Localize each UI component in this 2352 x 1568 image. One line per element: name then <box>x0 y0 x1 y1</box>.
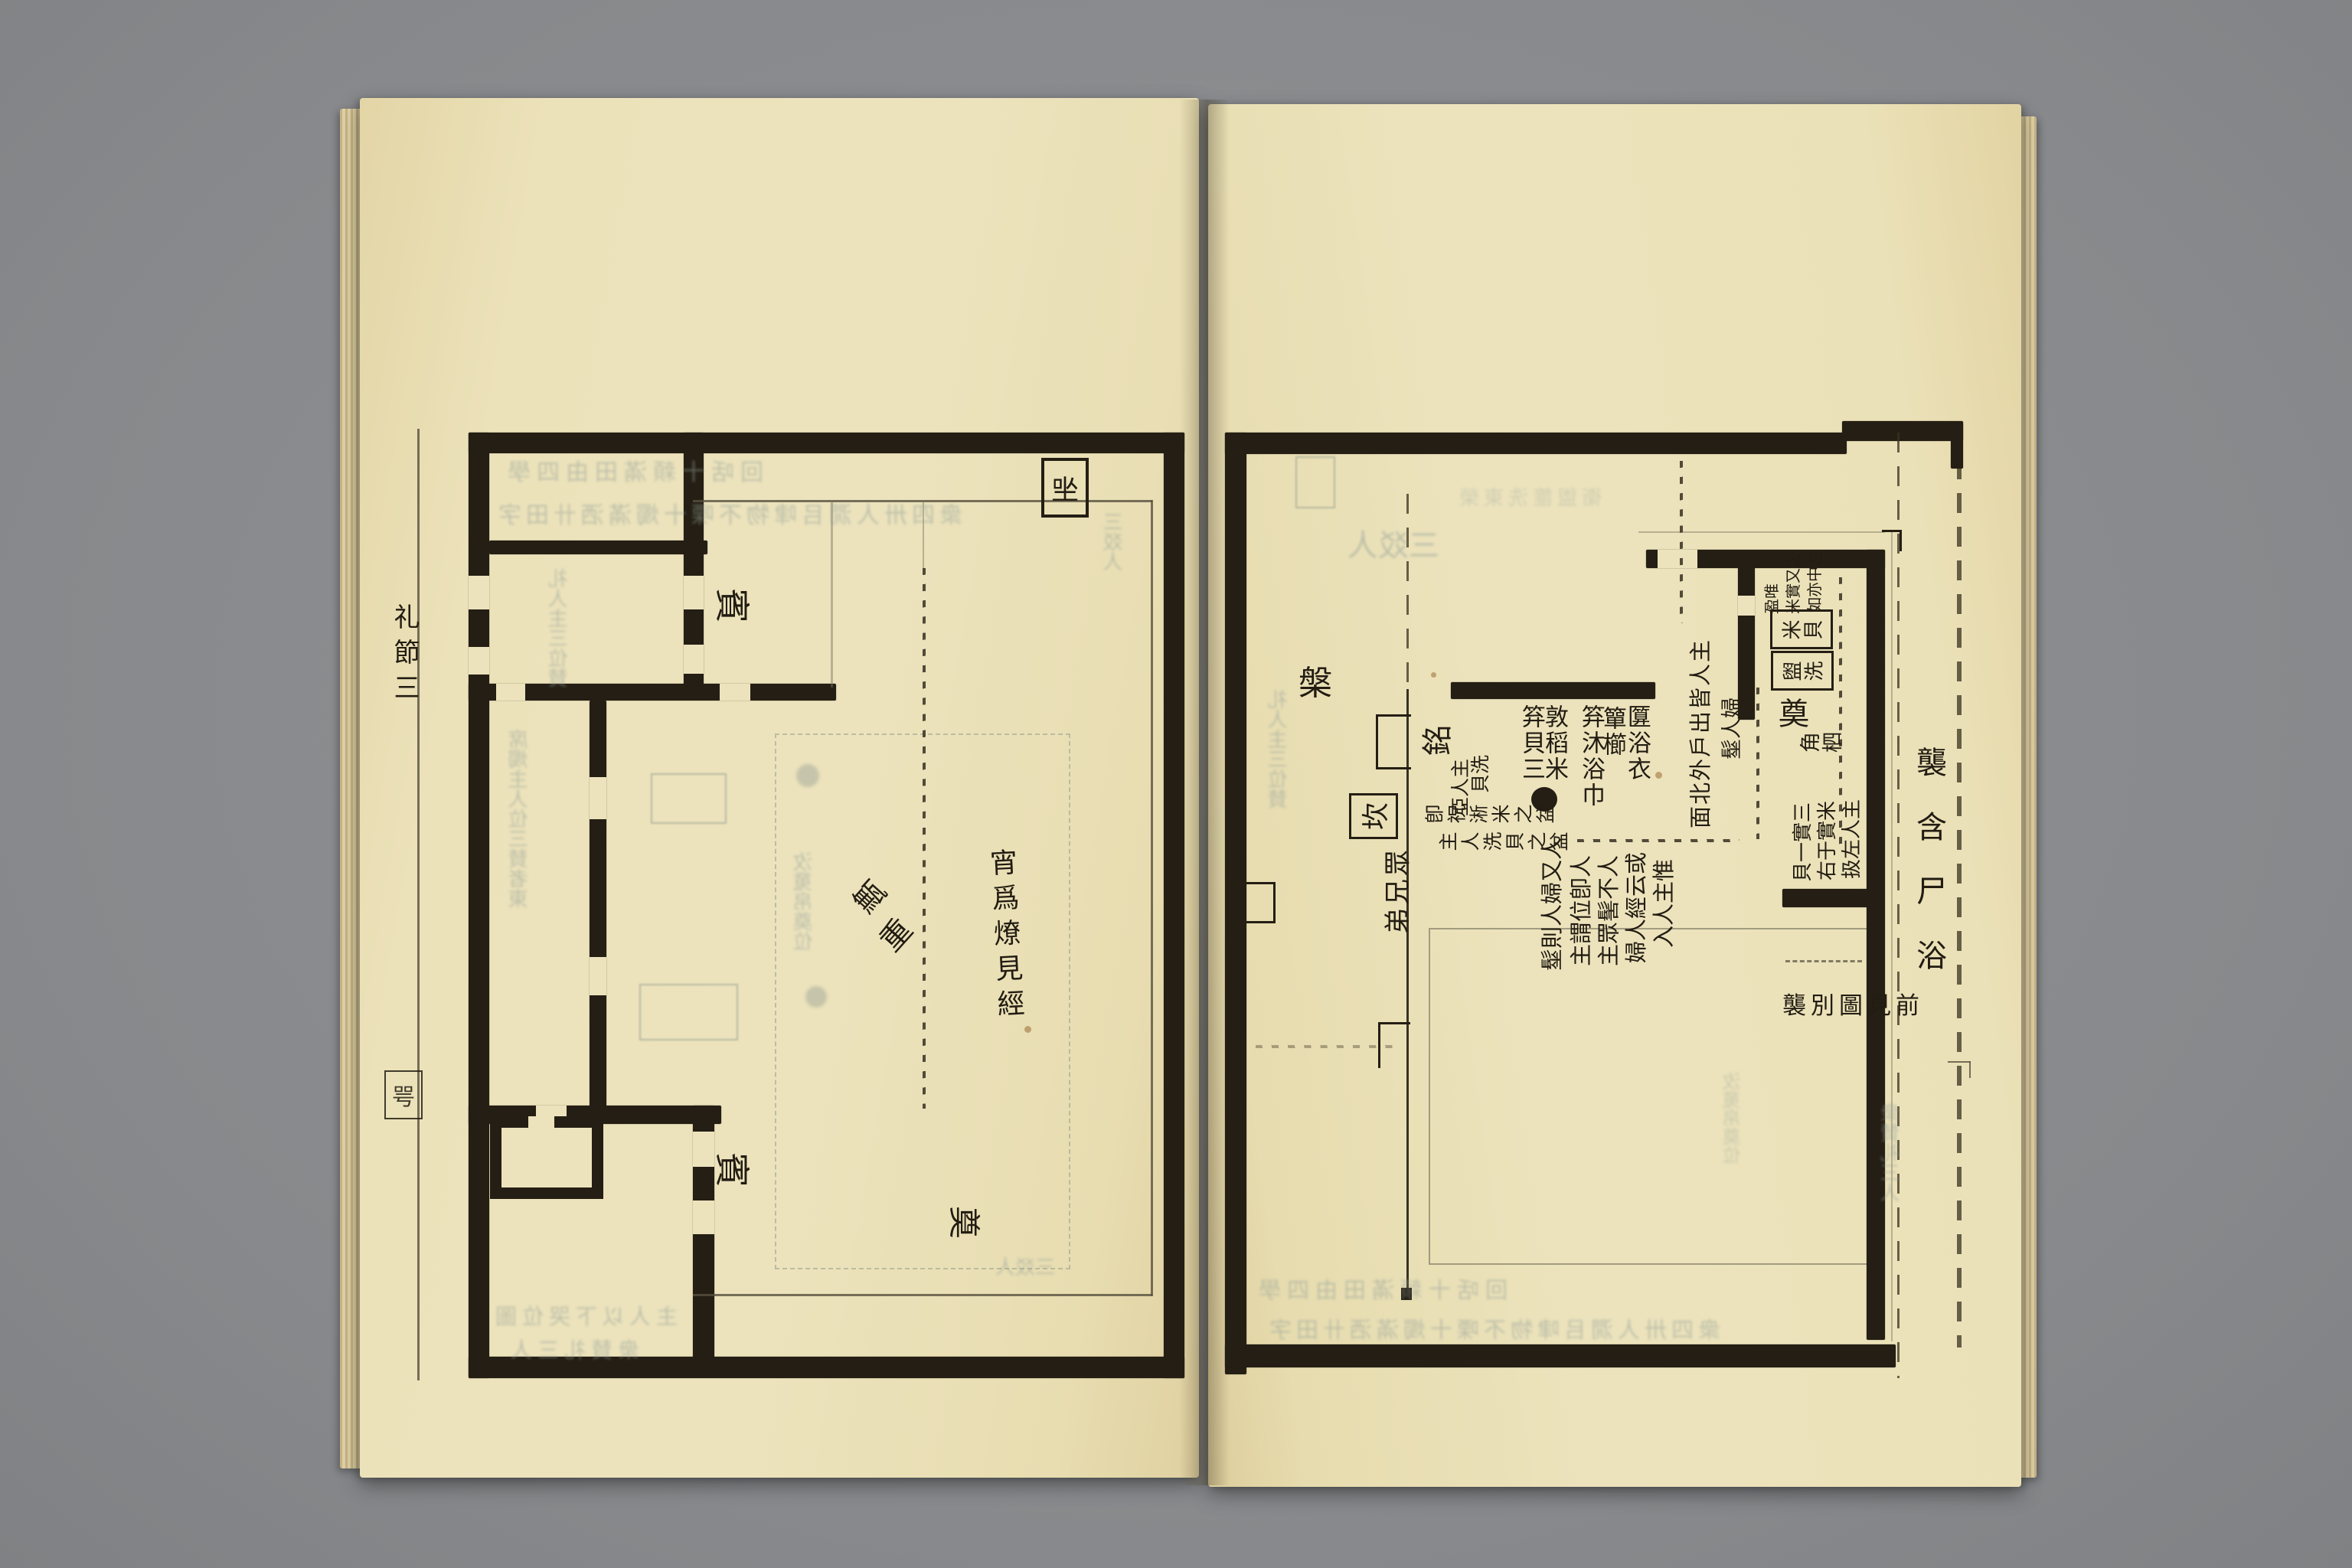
boxed-wash-label: 盥洗 <box>1771 651 1834 691</box>
insert-col: 貝一實三 <box>1787 802 1815 882</box>
door-gap <box>590 957 606 995</box>
item-cowries: 笲貝三 <box>1514 704 1549 782</box>
bleed-text: 席燭主人位三賛者東 <box>505 729 534 1089</box>
guest-label-upper: 賓 <box>709 588 759 623</box>
chamber-wall <box>1451 682 1655 699</box>
door-bracket2-top <box>1378 1022 1410 1024</box>
left-fold-rule <box>417 429 420 1380</box>
bleed-text: 三㸚人 <box>1100 511 1129 611</box>
bleed-text: 主人以下哭位圖 <box>490 1300 678 1331</box>
insert-col: 右于實米 <box>1811 801 1840 880</box>
note-col: 主眾髺不人 <box>1591 855 1623 966</box>
door-bracket-bottom <box>1376 767 1411 769</box>
bleed-text: 衛盥篚洗東榮 <box>1455 482 1602 511</box>
fold-corner-mark <box>1969 1061 1971 1078</box>
right-border-right-stub <box>1951 423 1963 469</box>
bleed-blob <box>796 764 819 787</box>
square-marker <box>1236 882 1276 923</box>
horn-spoon-label: 角柶 <box>1798 727 1842 757</box>
door-gap <box>720 684 750 701</box>
dotted-path <box>1680 461 1683 623</box>
bleed-text: 回咶十䫙滿田甶四學 <box>501 453 763 487</box>
thin-frame-v <box>1891 531 1893 1341</box>
bleed-box <box>639 984 738 1040</box>
bleed-text: 衆四卅人㵎㠯㖀物不㗚十燭滿洒卄田字 <box>1265 1312 1720 1344</box>
bleed-text: 三㸚人 <box>995 1252 1055 1280</box>
inner-room-wall-mid <box>1782 889 1868 907</box>
note-col: 入人主惟 <box>1646 859 1678 948</box>
bleed-text: 礼人主三位賛 <box>1265 689 1293 781</box>
right-border-right-dashed <box>1957 459 1962 1347</box>
photo-background: 礼節三 咢 㘴 賓 賓 甒 重 宵爲燎見經 奠 回咶十䫙滿田甶四學 衆四卅人㵎㠯… <box>0 0 2352 1568</box>
door-gap <box>496 684 525 701</box>
bleed-box <box>651 773 727 824</box>
bleed-text: 衆賛礼三人 <box>505 1334 639 1364</box>
boxed-rice-label: 米貝 <box>1770 609 1833 649</box>
door-gap <box>590 777 606 819</box>
door-bracket-top <box>1376 714 1411 717</box>
left-margin-mark-box: 咢 <box>384 1070 423 1119</box>
lower-thin-room <box>1429 928 1868 1265</box>
bleed-text: 衆四卅人㵎㠯㖀物不㗚十燭滿洒卄田字 <box>494 496 962 530</box>
left-margin-title: 礼節三 <box>386 603 423 709</box>
bleed-text: 回咶十䫙滿田甶四學 <box>1253 1272 1508 1305</box>
door-note: 面北外戶出皆人主 <box>1683 639 1715 828</box>
bleed-text: 三㸚人 <box>1347 521 1439 565</box>
bleed-text: 衆賛礼三人 <box>1877 1102 1906 1210</box>
seat-label: 㘴 <box>1051 468 1079 508</box>
bleed-text: 礼人主三位賛 <box>545 568 573 683</box>
left-room-wall-h1 <box>489 541 707 554</box>
rice-note-col: 米實又之 <box>1781 553 1803 614</box>
left-border-top <box>469 433 1184 453</box>
seat-box: 㘴 <box>1041 458 1089 518</box>
door-gap <box>693 1200 714 1234</box>
courtyard-line-bottom <box>693 1294 1152 1296</box>
door-gap <box>1738 596 1755 616</box>
door-gap <box>469 576 489 609</box>
thin-frame-h <box>1638 531 1885 533</box>
door-gap <box>469 647 489 675</box>
left-small-chamber <box>490 1116 603 1199</box>
bleed-box <box>1295 456 1335 508</box>
brothers-label: 弟兄眾 <box>1377 847 1414 934</box>
item-bath-towel: 笲沐浴巾 <box>1574 704 1609 808</box>
dotted-path <box>1756 688 1759 839</box>
basin-note-1: 卽祝淅米之盆 <box>1423 799 1556 827</box>
right-border-top-corner <box>1842 421 1963 441</box>
left-corridor-wall <box>590 701 606 1106</box>
left-margin-mark: 咢 <box>392 1078 415 1112</box>
inner-room-wall-right <box>1867 550 1885 1340</box>
hall-wall <box>1406 689 1409 1294</box>
right-border-bottom <box>1225 1344 1896 1367</box>
note-col: 婦人經云或 <box>1619 852 1651 963</box>
door-gap <box>684 645 704 674</box>
door-gap <box>528 1116 554 1128</box>
inscription-label: 銘 <box>1413 725 1457 756</box>
insert-col: 扱左人主 <box>1836 799 1864 879</box>
foxing-stain <box>1024 1026 1031 1033</box>
guest-label-lower: 賓 <box>709 1152 759 1187</box>
left-border-left <box>469 433 489 1378</box>
offering-label-left: 奠 <box>943 1206 990 1238</box>
book-spine <box>1179 100 1230 1485</box>
foxing-stain <box>1655 772 1662 779</box>
note-col: 髽則人婦又人 <box>1534 838 1566 971</box>
faint-dashes <box>1256 1045 1401 1048</box>
right-border-top <box>1225 433 1847 454</box>
note-col: 主謂位卽人 <box>1563 855 1596 966</box>
dotted-path <box>923 568 926 1109</box>
rice-note-col: 如亦中左 <box>1802 551 1824 612</box>
courtyard-line-right <box>1151 500 1153 1296</box>
left-border-right <box>1164 433 1184 1378</box>
pit-label: 坎 <box>1354 802 1393 830</box>
foxing-stain <box>1431 672 1436 678</box>
fold-corner-mark <box>1948 1061 1971 1063</box>
door-gap <box>1658 550 1697 568</box>
right-margin-rites: 襲含尸浴 <box>1906 746 1951 1004</box>
dotted-path-horizontal <box>1577 839 1739 842</box>
bleed-text: 㳊䰟帛奠位 <box>1720 1072 1746 1194</box>
inner-room-dashed <box>1785 960 1862 962</box>
bleed-blob <box>805 986 827 1008</box>
see-previous-note: 襲別圖見前 <box>1782 986 1924 1021</box>
corner-notch <box>1900 530 1902 551</box>
inner-room-wall-left <box>1738 563 1755 720</box>
pit-box: 坎 <box>1349 793 1398 839</box>
right-fold-rule-inner <box>1897 433 1900 1378</box>
door-bracket-side <box>1376 714 1378 769</box>
door-gap <box>684 576 704 609</box>
basin-label: 槃 <box>1298 655 1332 704</box>
